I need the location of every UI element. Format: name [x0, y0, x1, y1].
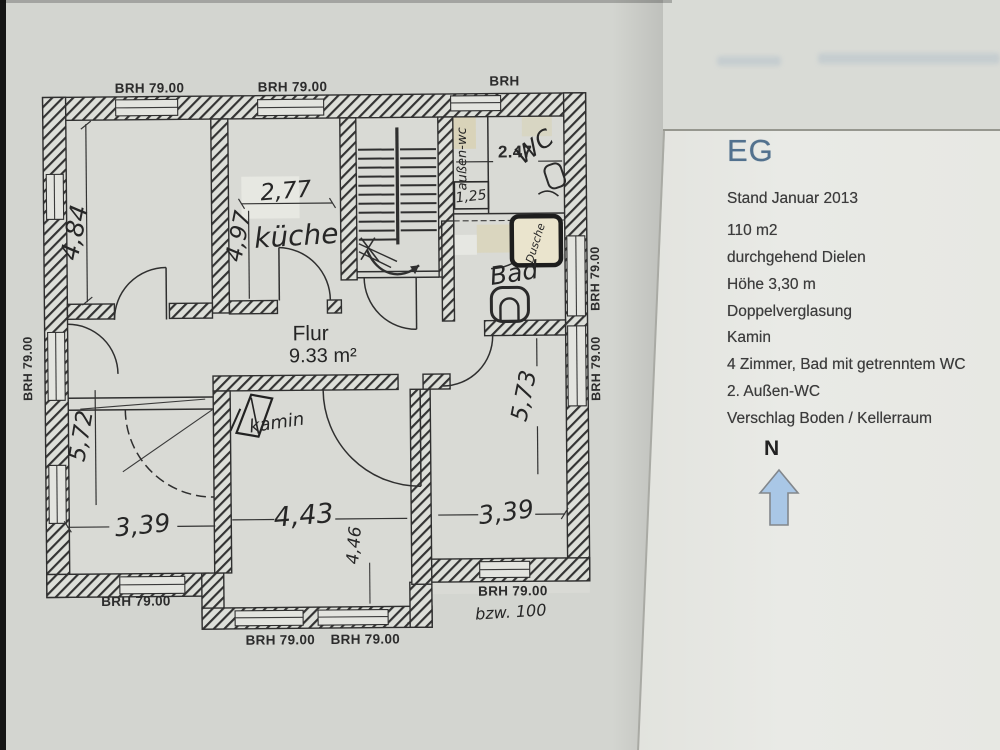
page-seam	[663, 129, 1000, 131]
ghost-text-bar	[717, 56, 781, 66]
sill-note-bzw-100: bzw. 100	[475, 600, 547, 623]
feature-fireplace: Kamin	[727, 329, 771, 347]
north-label: N	[764, 437, 817, 461]
dim-3-39-left: 3,39	[113, 508, 171, 542]
sill-label-bay-1: BRH 79.00	[246, 632, 316, 648]
scan-edge-top	[0, 0, 672, 3]
dim-4-46: 4,46	[343, 526, 366, 565]
feature-area: 110 m2	[727, 222, 778, 240]
ghost-text-bar	[818, 53, 1000, 64]
sill-label-top-1: BRH 79.00	[115, 80, 185, 96]
room-label-flur: Flur	[292, 322, 328, 345]
sill-label-top-2: BRH 79.00	[258, 79, 328, 95]
north-indicator: N	[757, 437, 817, 534]
sheet-behind-top	[663, 0, 1000, 130]
sill-label-right-2: BRH 79.00	[589, 336, 604, 401]
feature-flooring: durchgehend Dielen	[727, 249, 866, 267]
room-label-aussen-wc: außen-wc	[455, 127, 471, 190]
sill-label-bottom-right: BRH 79.00	[478, 583, 548, 599]
scanned-floorplan-page: 4,84 2,77 4,97 2.47 1,25 5,72 3,39 4,43 …	[0, 0, 1000, 750]
sill-label-left: BRH 79.00	[21, 336, 36, 401]
sill-label-bottom-left: BRH 79.00	[101, 593, 171, 609]
info-sheet	[638, 131, 1000, 750]
scan-edge-left	[0, 0, 6, 750]
feature-glazing: Doppelverglasung	[727, 303, 852, 321]
feature-storage: Verschlag Boden / Kellerraum	[727, 410, 932, 428]
room-label-kueche: küche	[253, 217, 339, 255]
date-line: Stand Januar 2013	[727, 190, 992, 208]
floor-title: EG	[727, 133, 992, 169]
feature-height: Höhe 3,30 m	[727, 276, 816, 294]
north-arrow-icon	[757, 467, 801, 529]
sill-label-right-1: BRH 79.00	[588, 246, 603, 311]
sill-label-bay-2: BRH 79.00	[331, 631, 401, 647]
floorplan-drawing: 4,84 2,77 4,97 2.47 1,25 5,72 3,39 4,43 …	[0, 0, 668, 750]
dim-2-77: 2,77	[259, 176, 312, 206]
info-panel: EG Stand Januar 2013 110 m2 durchgehend …	[727, 133, 992, 208]
feature-rooms: 4 Zimmer, Bad mit getrenntem WC	[727, 356, 966, 374]
sill-label-top-3: BRH	[489, 73, 519, 88]
dim-4-43: 4,43	[272, 498, 334, 534]
feature-outdoor-wc: 2. Außen-WC	[727, 383, 820, 401]
room-label-flur-area: 9.33 m²	[289, 345, 357, 368]
